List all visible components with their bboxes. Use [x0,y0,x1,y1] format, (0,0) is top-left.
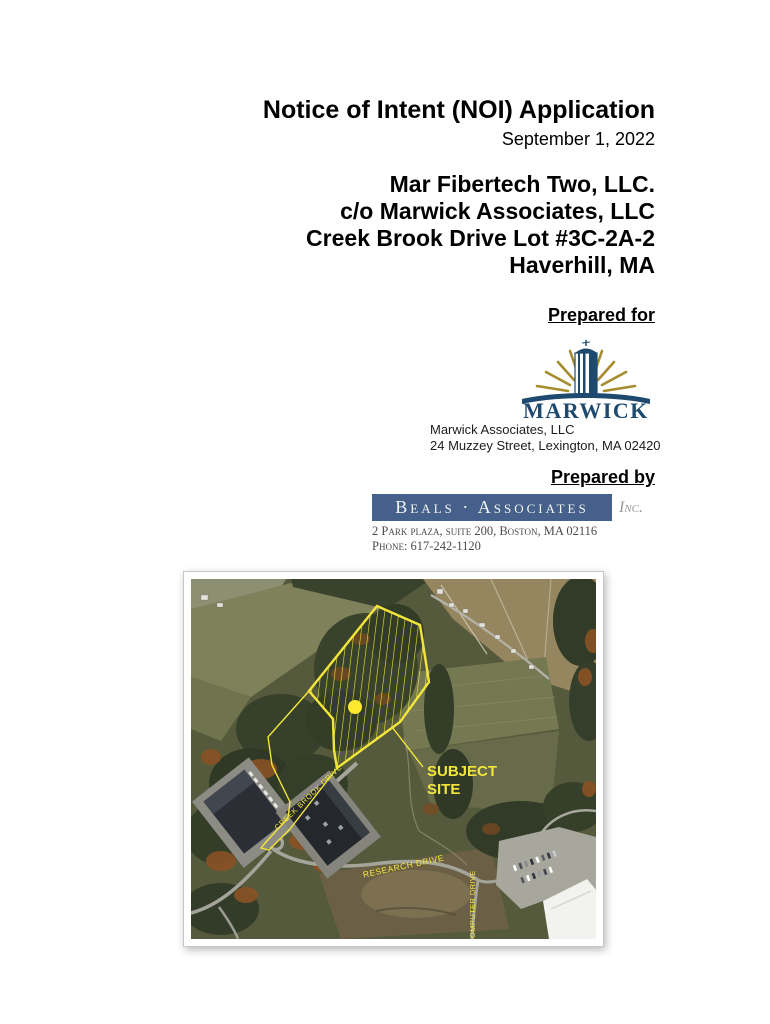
site-aerial-map: SUBJECT SITE CREEK BROOK DRIVE RESEARCH … [183,571,604,947]
marwick-company: Marwick Associates, LLC [430,422,661,438]
beals-logo-bar: Beals · Associates [372,494,612,521]
marwick-logo-text: MARWICK [523,398,649,419]
road-label-computer-drive: COMPUTER DRIVE [468,870,477,939]
beals-phone: Phone: 617-242-1120 [372,539,597,554]
applicant-line: c/o Marwick Associates, LLC [306,198,655,225]
marwick-logo: MARWICK [517,339,655,419]
applicant-block: Mar Fibertech Two, LLC. c/o Marwick Asso… [306,171,655,279]
prepared-for-heading: Prepared for [548,305,655,326]
beals-associates-logo: Beals · Associates Inc. [372,494,643,521]
site-marker-dot [348,700,362,714]
marwick-address-block: Marwick Associates, LLC 24 Muzzey Street… [430,422,661,454]
prepared-by-heading: Prepared by [551,467,655,488]
subject-site-label-line2: SITE [427,781,460,798]
document-date: September 1, 2022 [502,129,655,150]
applicant-line: Mar Fibertech Two, LLC. [306,171,655,198]
applicant-line: Haverhill, MA [306,252,655,279]
marwick-street-address: 24 Muzzey Street, Lexington, MA 02420 [430,438,661,454]
subject-site-label-line1: SUBJECT [427,763,497,780]
beals-address-block: 2 Park plaza, suite 200, Boston, MA 0211… [372,524,597,554]
beals-street-address: 2 Park plaza, suite 200, Boston, MA 0211… [372,524,597,539]
document-title: Notice of Intent (NOI) Application [263,96,655,125]
document-page: Notice of Intent (NOI) Application Septe… [0,0,770,1024]
lighthouse-tower-icon [575,340,597,395]
applicant-line: Creek Brook Drive Lot #3C-2A-2 [306,225,655,252]
beals-logo-inc: Inc. [619,499,643,517]
